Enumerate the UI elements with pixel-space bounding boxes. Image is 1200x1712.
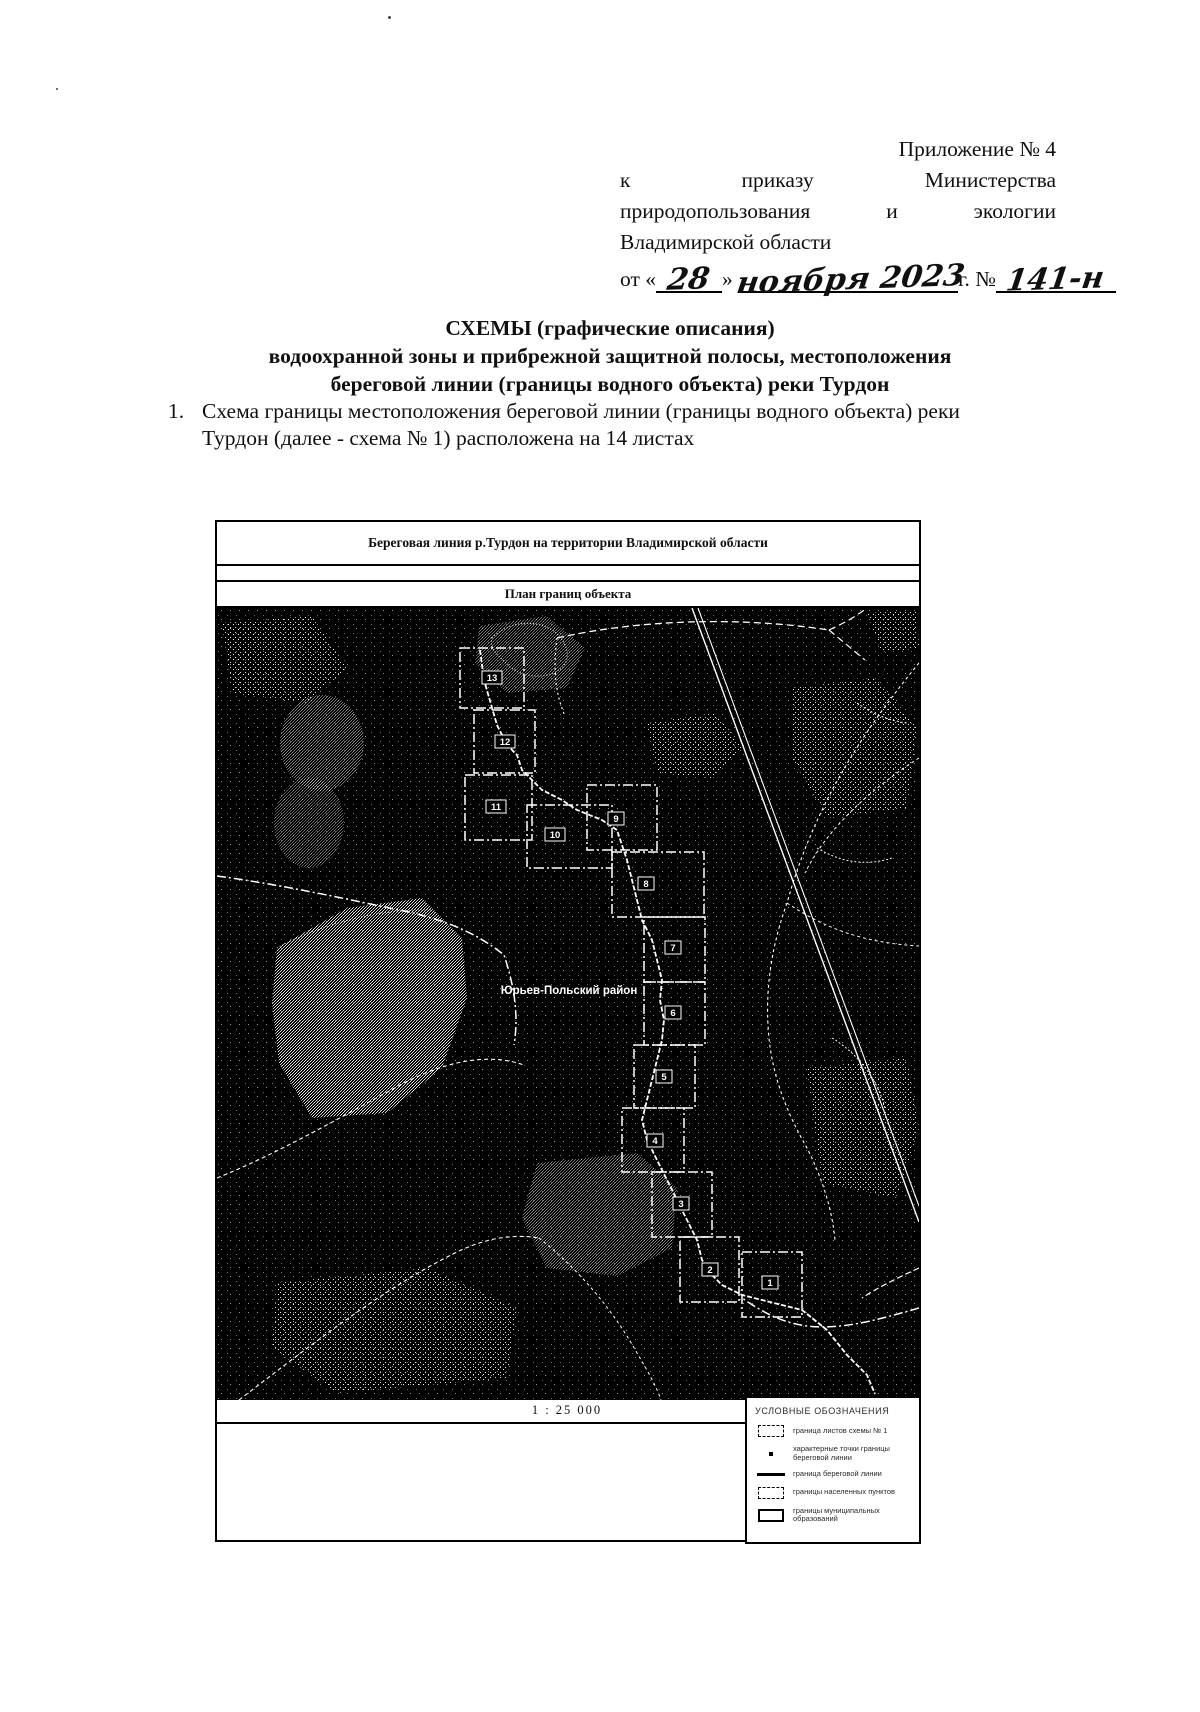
sheet-number-badge: 8 xyxy=(638,877,654,890)
handwritten-number-underline: 141-н xyxy=(996,261,1116,293)
sheet-number-badge: 9 xyxy=(608,812,624,825)
sheet-number-10: 10 xyxy=(550,830,561,841)
date-close-quote: » xyxy=(722,267,733,291)
handwritten-month-year: ноября 2023 xyxy=(735,260,967,299)
region-line: Владимирской области xyxy=(620,227,1056,258)
list-item-text: Схема границы местоположения береговой л… xyxy=(202,398,1020,451)
word: Министерства xyxy=(925,165,1056,196)
sheet-number-badge: 2 xyxy=(702,1263,718,1276)
document-title: СХЕМЫ (графические описания) водоохранно… xyxy=(140,314,1080,398)
list-item-1: 1. Схема границы местоположения берегово… xyxy=(168,398,1020,451)
scheme-title-row: Береговая линия р.Турдон на территории В… xyxy=(217,522,919,566)
sheet-number-13: 13 xyxy=(487,673,498,684)
word: к xyxy=(620,165,630,196)
sheet-number-badge: 11 xyxy=(486,800,506,813)
scan-artifact-dot xyxy=(56,88,58,90)
handwritten-month-underline: ноября 2023 xyxy=(738,261,958,293)
legend-item: граница листов схемы № 1 xyxy=(754,1425,914,1437)
dashdot-rect-icon xyxy=(754,1425,788,1437)
sheet-number-11: 11 xyxy=(491,802,502,813)
legend-title: УСЛОВНЫЕ ОБОЗНАЧЕНИЯ xyxy=(755,1406,914,1416)
legend-item-label: характерные точки границы береговой лини… xyxy=(793,1445,914,1462)
scan-artifact-dot xyxy=(388,16,391,19)
sheet-number-5: 5 xyxy=(661,1072,667,1083)
handwritten-day-underline: 28 xyxy=(656,261,722,293)
legend-item-label: границы населенных пунктов xyxy=(793,1488,895,1497)
scanned-document-page: Приложение № 4 к приказу Министерства пр… xyxy=(0,0,1200,1712)
bold-rect-icon xyxy=(754,1509,788,1522)
sheet-number-badge: 10 xyxy=(545,828,565,841)
legend-item-label: граница береговой линии xyxy=(793,1470,882,1479)
legend-box: УСЛОВНЫЕ ОБОЗНАЧЕНИЯ граница листов схем… xyxy=(745,1396,921,1544)
handwritten-order-number: 141-н xyxy=(1004,262,1106,296)
title-line-3: береговой линии (границы водного объекта… xyxy=(140,370,1080,398)
map-canvas: 13 12 11 10 9 8 7 6 5 4 3 2 1 Юрьев-Поль… xyxy=(217,608,919,1400)
sheet-number-6: 6 xyxy=(670,1008,675,1019)
sheet-number-12: 12 xyxy=(500,737,511,748)
sheet-number-badge: 13 xyxy=(482,671,502,684)
sheet-number-badge: 5 xyxy=(656,1070,672,1083)
date-line: от «28» ноября 2023г. №141-н xyxy=(620,261,1056,305)
point-icon xyxy=(754,1452,788,1456)
handwritten-day: 28 xyxy=(665,263,711,295)
legend-item: границы муниципальных образований xyxy=(754,1507,914,1524)
grey-patch xyxy=(274,778,344,868)
scheme-empty-row xyxy=(217,566,919,582)
word: экологии xyxy=(974,196,1056,227)
legend-item: граница береговой линии xyxy=(754,1470,914,1479)
date-prefix: от « xyxy=(620,267,656,291)
title-line-2: водоохранной зоны и прибрежной защитной … xyxy=(140,342,1080,370)
sheet-number-3: 3 xyxy=(678,1199,683,1210)
list-item-number: 1. xyxy=(168,398,184,425)
title-line-1: СХЕМЫ (графические описания) xyxy=(140,314,1080,342)
sheet-number-7: 7 xyxy=(670,943,675,954)
order-line-2: природопользования и экологии xyxy=(620,196,1056,227)
sheet-number-4: 4 xyxy=(652,1136,658,1147)
word: природопользования xyxy=(620,196,810,227)
solid-line-icon xyxy=(754,1473,788,1476)
sheet-number-badge: 12 xyxy=(495,735,515,748)
sheet-number-badge: 7 xyxy=(665,941,681,954)
district-label: Юрьев-Польский район xyxy=(501,985,638,997)
sheet-number-8: 8 xyxy=(643,879,648,890)
legend-item-label: границы муниципальных образований xyxy=(793,1507,914,1524)
sheet-number-2: 2 xyxy=(707,1265,712,1276)
word: приказу xyxy=(742,165,814,196)
word: и xyxy=(886,196,898,227)
dashed-rect-icon xyxy=(754,1487,788,1499)
sheet-number-badge: 4 xyxy=(647,1134,663,1147)
grey-patch xyxy=(280,695,364,791)
sheet-number-badge: 6 xyxy=(665,1006,681,1019)
sheet-number-9: 9 xyxy=(613,814,618,825)
appendix-number-line: Приложение № 4 xyxy=(620,134,1056,165)
scheme-figure-frame: Береговая линия р.Турдон на территории В… xyxy=(215,520,921,1542)
order-line-1: к приказу Министерства xyxy=(620,165,1056,196)
appendix-header: Приложение № 4 к приказу Министерства пр… xyxy=(620,134,1056,305)
sheet-number-badge: 1 xyxy=(762,1276,778,1289)
legend-item-label: граница листов схемы № 1 xyxy=(793,1427,887,1436)
legend-item: характерные точки границы береговой лини… xyxy=(754,1445,914,1462)
map-svg: 13 12 11 10 9 8 7 6 5 4 3 2 1 Юрьев-Поль… xyxy=(217,608,919,1400)
legend-item: границы населенных пунктов xyxy=(754,1487,914,1499)
scheme-subtitle-row: План границ объекта xyxy=(217,582,919,608)
sheet-number-1: 1 xyxy=(767,1278,773,1289)
sheet-number-badge: 3 xyxy=(673,1197,689,1210)
